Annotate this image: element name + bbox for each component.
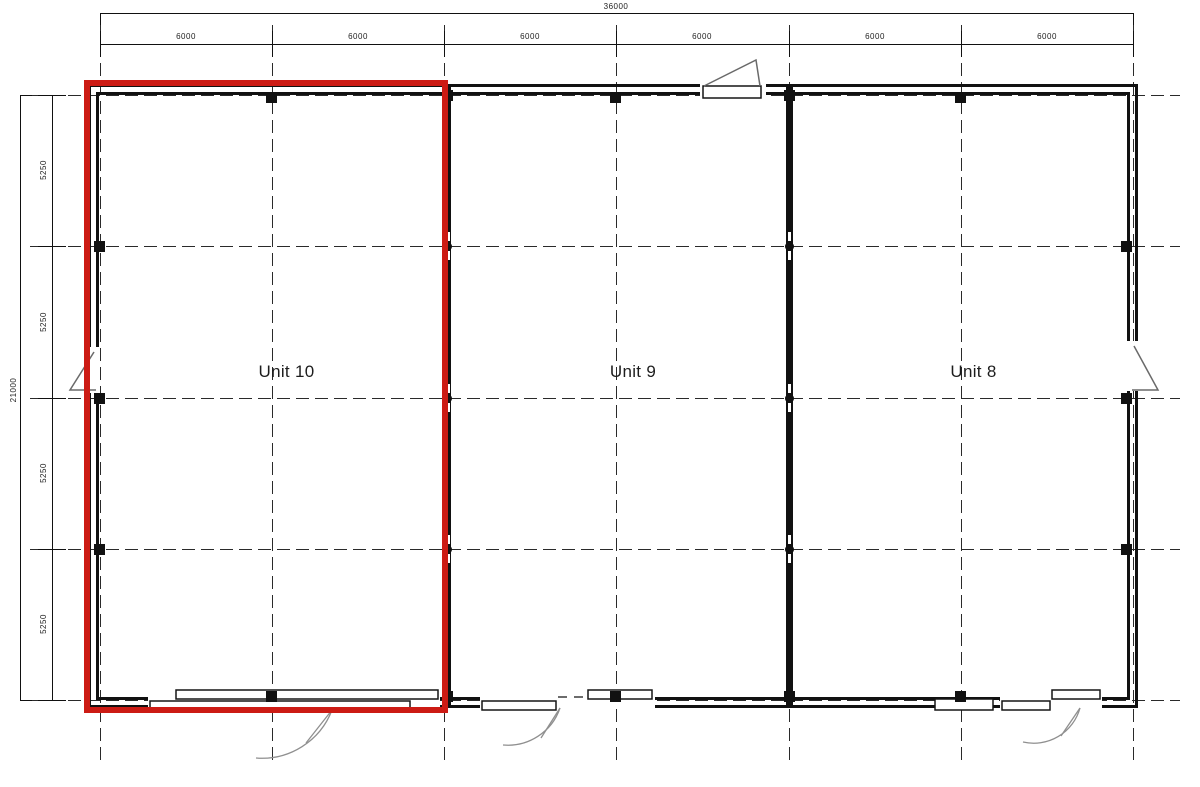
dim-line-overall-height — [20, 95, 21, 700]
unit-region-unit8[interactable]: Unit 8 — [793, 95, 1126, 700]
right-door — [1127, 341, 1158, 391]
dim-label-bay: 5250 — [39, 150, 49, 190]
dim-tick — [272, 31, 273, 57]
dim-tick — [616, 31, 617, 57]
dim-label-bay: 6000 — [166, 32, 206, 42]
unit-region-unit10[interactable]: Unit 10 — [100, 95, 445, 700]
wall-gap — [788, 535, 791, 544]
dim-label-overall-width: 36000 — [596, 2, 636, 12]
dim-tick — [961, 31, 962, 57]
dim-tick — [38, 95, 66, 96]
dim-label-bay: 6000 — [510, 32, 550, 42]
dim-tick — [100, 31, 101, 57]
wall-gap — [788, 251, 791, 260]
dim-label-bay: 5250 — [39, 302, 49, 342]
dim-label-bay: 6000 — [1027, 32, 1067, 42]
unit-8-label: Unit 8 — [950, 362, 996, 382]
floor-plan: Unit 10 Unit 9 Unit 8 36000 6000 6000 60… — [0, 0, 1200, 787]
unit-10-label: Unit 10 — [259, 362, 315, 382]
dim-tick — [38, 549, 66, 550]
wall-gap — [788, 384, 791, 393]
wall-gap — [788, 403, 791, 412]
dim-tick — [789, 31, 790, 57]
dim-label-bay: 6000 — [855, 32, 895, 42]
dim-tick — [38, 700, 66, 701]
dim-label-bay: 6000 — [682, 32, 722, 42]
wall-gap — [788, 232, 791, 241]
dim-hook — [1133, 13, 1134, 25]
dim-tick — [444, 31, 445, 57]
dim-tick — [38, 246, 66, 247]
dim-label-bay: 5250 — [39, 604, 49, 644]
dim-line-overall-width — [100, 13, 1133, 14]
unit-region-unit9[interactable]: Unit 9 — [452, 95, 786, 700]
wall-gap — [788, 554, 791, 563]
dim-hook — [20, 95, 32, 96]
dim-label-bay: 5250 — [39, 453, 49, 493]
dim-tick — [1133, 31, 1134, 57]
dim-label-bay: 6000 — [338, 32, 378, 42]
top-door-unit9 — [700, 60, 766, 100]
dim-hook — [100, 13, 101, 25]
dim-label-overall-height: 21000 — [9, 370, 19, 410]
unit-9-label: Unit 9 — [610, 362, 656, 382]
dim-tick — [38, 398, 66, 399]
dim-hook — [20, 700, 32, 701]
